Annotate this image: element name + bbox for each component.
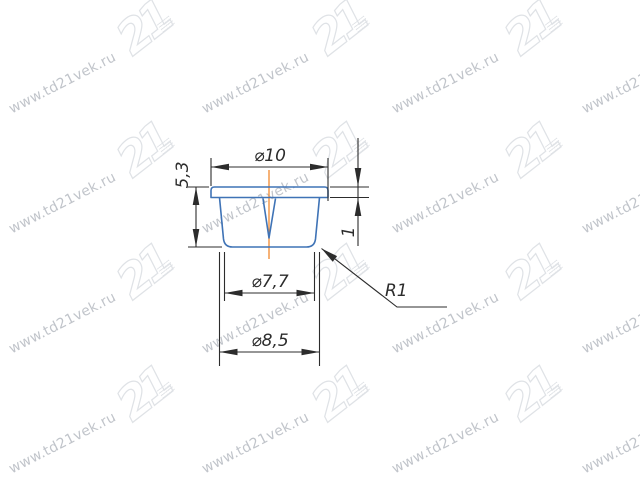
dim-label-flange-1: 1	[339, 227, 359, 238]
dim-label-radius-r1: R1	[385, 281, 408, 301]
dim-label-height-53: 5,3	[173, 161, 193, 188]
arrow	[297, 290, 315, 297]
drawing-canvas: 212121212121212121212121www.td21vek.ruww…	[0, 0, 640, 480]
arrow	[220, 349, 238, 356]
arrow	[355, 198, 362, 216]
dim-label-diameter-77: ⌀7,7	[251, 272, 288, 292]
arrow	[355, 168, 362, 187]
technical-drawing: ⌀10 5,3 1 ⌀7,7 ⌀8,5 R1	[0, 0, 640, 480]
arrow	[322, 249, 338, 262]
dim-label-diameter-10: ⌀10	[254, 146, 286, 166]
arrow	[211, 164, 229, 171]
arrow	[193, 187, 200, 205]
arrow	[225, 290, 243, 297]
arrow	[193, 229, 200, 247]
arrow	[302, 349, 320, 356]
dim-label-diameter-85: ⌀8,5	[251, 331, 288, 351]
dimension-lines	[188, 138, 447, 366]
arrow	[310, 164, 328, 171]
